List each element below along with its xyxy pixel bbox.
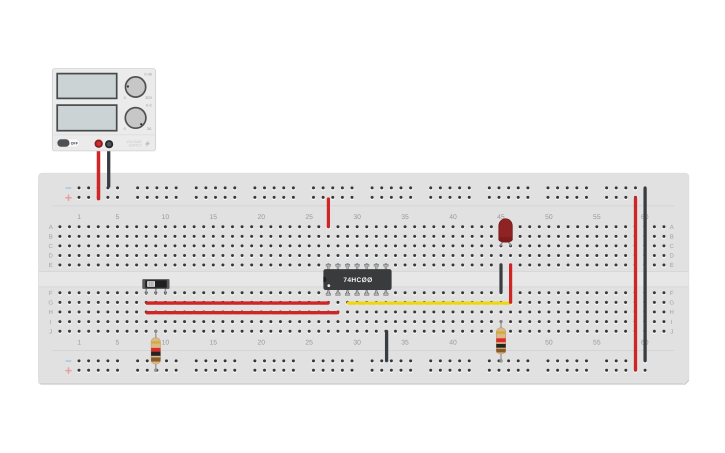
svg-text:0: 0: [124, 96, 126, 100]
svg-text:5: 5: [116, 214, 120, 221]
svg-text:C: C: [670, 243, 675, 250]
svg-text:15: 15: [210, 214, 218, 221]
svg-text:C: C: [49, 243, 54, 250]
svg-text:D: D: [49, 253, 54, 260]
svg-text:F: F: [670, 290, 674, 297]
svg-text:55: 55: [593, 214, 601, 221]
svg-text:G: G: [48, 300, 53, 307]
svg-text:40: 40: [449, 214, 457, 221]
svg-text:J: J: [49, 328, 52, 335]
svg-text:15: 15: [210, 340, 218, 347]
svg-text:30: 30: [353, 340, 361, 347]
svg-text:40: 40: [449, 340, 457, 347]
svg-text:55: 55: [593, 340, 601, 347]
svg-text:F: F: [49, 290, 53, 297]
svg-text:0: 0: [124, 127, 126, 131]
svg-text:B: B: [49, 234, 53, 241]
svg-text:G: G: [669, 300, 674, 307]
svg-text:50: 50: [545, 214, 553, 221]
svg-text:10: 10: [162, 214, 170, 221]
svg-text:E: E: [49, 262, 53, 269]
svg-text:SUPPLY: SUPPLY: [129, 144, 143, 148]
svg-text:0-3: 0-3: [146, 104, 152, 108]
svg-text:1: 1: [77, 214, 81, 221]
svg-text:30: 30: [353, 214, 361, 221]
svg-text:50: 50: [545, 340, 553, 347]
svg-text:D: D: [670, 253, 675, 260]
svg-text:1: 1: [77, 340, 81, 347]
svg-text:10: 10: [162, 340, 170, 347]
svg-text:35: 35: [401, 214, 409, 221]
svg-text:A: A: [49, 224, 53, 231]
svg-text:5: 5: [116, 340, 120, 347]
svg-text:A: A: [670, 224, 674, 231]
svg-text:20: 20: [257, 340, 265, 347]
svg-text:J: J: [670, 328, 673, 335]
svg-text:25: 25: [305, 214, 313, 221]
svg-text:0-30: 0-30: [144, 73, 152, 77]
svg-text:H: H: [49, 309, 53, 316]
svg-text:B: B: [670, 234, 674, 241]
svg-text:E: E: [670, 262, 674, 269]
svg-text:35: 35: [401, 340, 409, 347]
svg-text:OFF: OFF: [71, 142, 79, 146]
svg-text:H: H: [670, 309, 674, 316]
svg-text:20: 20: [257, 214, 265, 221]
svg-text:25: 25: [305, 340, 313, 347]
svg-text:30V: 30V: [145, 96, 152, 100]
svg-text:74HCØØ: 74HCØØ: [343, 277, 372, 284]
svg-text:3A: 3A: [147, 127, 152, 131]
